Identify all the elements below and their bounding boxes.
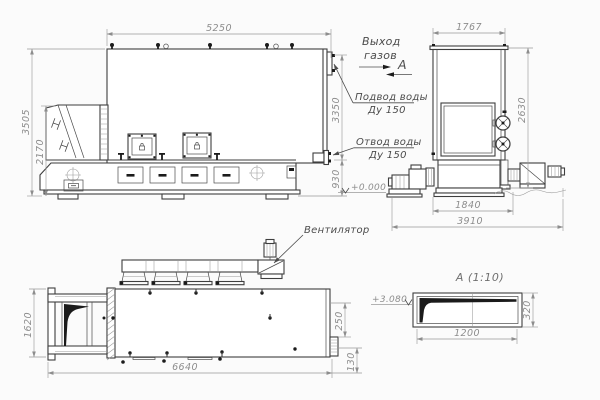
water-supply-label-line2: Ду 150 bbox=[367, 105, 406, 116]
dim-6640-text: 6640 bbox=[172, 362, 198, 373]
boiler-drawing: 5250 3505 2170 3350 930 +0.000 bbox=[0, 0, 600, 400]
dim-1620: 1620 bbox=[23, 289, 46, 357]
side-view: 1767 2630 1840 3910 bbox=[387, 22, 566, 231]
dim-250: 250 bbox=[330, 303, 351, 337]
plan-right-flange bbox=[330, 337, 338, 356]
elevation-3080-datum: +3.080 bbox=[371, 295, 413, 305]
dim-2170-text: 2170 bbox=[35, 139, 46, 165]
view-direction-arrow-icon bbox=[386, 72, 412, 76]
dim-1767-text: 1767 bbox=[456, 22, 482, 33]
dim-320-text: 320 bbox=[522, 300, 533, 319]
dim-1200: 1200 bbox=[417, 328, 517, 344]
dim-1200-text: 1200 bbox=[454, 328, 480, 339]
air-duct bbox=[122, 260, 258, 272]
fan-motor bbox=[264, 240, 276, 261]
side-front-panel bbox=[441, 103, 495, 156]
drive-assembly bbox=[494, 163, 566, 197]
plan-body bbox=[107, 289, 330, 357]
water-return-label-line1: Отвод воды bbox=[356, 137, 422, 148]
dim-930: 930 bbox=[298, 160, 347, 196]
drawing-canvas: 5250 3505 2170 3350 930 +0.000 bbox=[0, 0, 600, 400]
dim-3350-text: 3350 bbox=[331, 97, 342, 123]
water-supply-callout: Подвод воды Ду 150 bbox=[334, 64, 428, 116]
hatch-door-2 bbox=[183, 133, 211, 158]
gas-flow-arrow-icon bbox=[359, 65, 391, 69]
detail-view-a: А (1:10) 320 1200 +3.080 bbox=[371, 271, 538, 344]
dim-250-text: 250 bbox=[334, 311, 345, 330]
dim-2630-text: 2630 bbox=[517, 97, 528, 123]
gas-outlet-label-line1: Выход bbox=[362, 35, 401, 48]
hatch-door-1 bbox=[128, 134, 156, 159]
detail-frame bbox=[413, 293, 522, 327]
ground-break-line bbox=[494, 190, 566, 196]
elevation-zero-text: +0.000 bbox=[351, 183, 386, 193]
gas-outlet-label-line2: газов bbox=[364, 49, 397, 62]
fuel-hopper bbox=[46, 105, 108, 160]
dim-1767: 1767 bbox=[433, 22, 505, 44]
feeder-wedge bbox=[64, 304, 89, 346]
feeder-motor bbox=[387, 165, 434, 197]
dim-6640: 6640 bbox=[48, 359, 332, 378]
fan-unit bbox=[258, 240, 284, 279]
ladder bbox=[100, 105, 108, 160]
dim-5250-text: 5250 bbox=[206, 23, 232, 34]
dim-3505-text: 3505 bbox=[21, 109, 32, 135]
water-return-flange bbox=[313, 151, 331, 165]
dim-1840-text: 1840 bbox=[455, 200, 481, 211]
water-return-callout: Отвод воды Ду 150 bbox=[333, 137, 422, 161]
base-plate bbox=[44, 190, 300, 194]
dim-320: 320 bbox=[522, 293, 538, 327]
view-arrow-letter: А bbox=[397, 57, 407, 72]
dim-3910-text: 3910 bbox=[457, 216, 483, 227]
joint-strip bbox=[107, 288, 115, 360]
elevation-3080-text: +3.080 bbox=[372, 295, 407, 305]
water-supply-label-line1: Подвод воды bbox=[355, 92, 428, 103]
dim-130-text: 130 bbox=[346, 352, 357, 371]
water-return-label-line2: Ду 150 bbox=[368, 150, 407, 161]
feeder-frame bbox=[48, 288, 107, 360]
dim-930-text: 930 bbox=[331, 169, 342, 188]
fan-label: Вентилятор bbox=[304, 225, 370, 236]
fan-callout: Вентилятор bbox=[274, 225, 370, 263]
lifting-lugs bbox=[110, 43, 294, 49]
detail-title: А (1:10) bbox=[455, 271, 504, 284]
front-view: 5250 3505 2170 3350 930 +0.000 bbox=[21, 23, 386, 199]
dim-1620-text: 1620 bbox=[23, 312, 34, 338]
base-plinth bbox=[40, 160, 300, 199]
plan-view: Вентилятор bbox=[23, 225, 370, 378]
annotations: Выход газов А Подвод воды Ду 150 Отвод в… bbox=[333, 35, 428, 161]
duct-nozzles bbox=[120, 272, 244, 285]
